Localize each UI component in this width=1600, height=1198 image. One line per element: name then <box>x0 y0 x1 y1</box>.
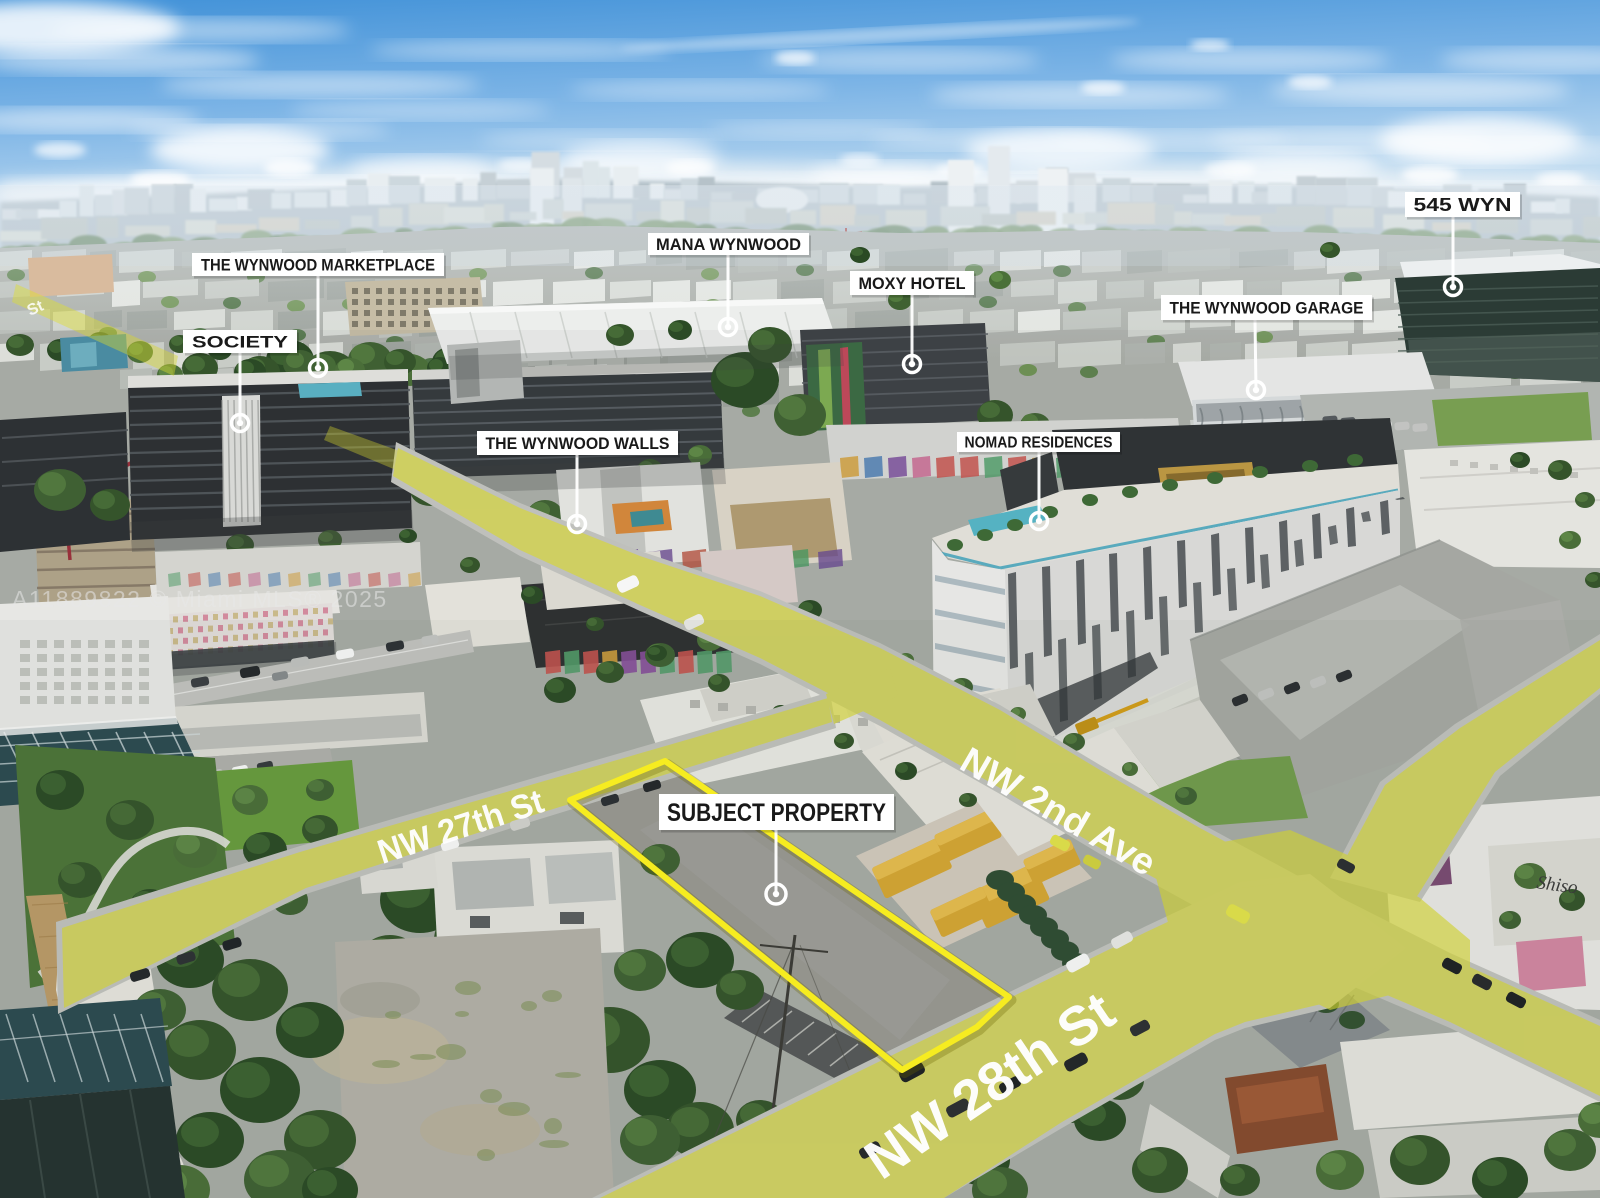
svg-text:545 WYN: 545 WYN <box>1414 195 1512 215</box>
svg-text:THE WYNWOOD GARAGE: THE WYNWOOD GARAGE <box>1170 299 1364 318</box>
svg-text:THE WYNWOOD MARKETPLACE: THE WYNWOOD MARKETPLACE <box>201 256 435 275</box>
svg-text:MANA WYNWOOD: MANA WYNWOOD <box>656 236 801 254</box>
svg-text:A11889822 © Miami MLS® 2025: A11889822 © Miami MLS® 2025 <box>12 586 388 612</box>
svg-text:MOXY HOTEL: MOXY HOTEL <box>859 274 966 293</box>
svg-text:NOMAD RESIDENCES: NOMAD RESIDENCES <box>965 435 1113 452</box>
svg-text:THE WYNWOOD WALLS: THE WYNWOOD WALLS <box>486 434 670 453</box>
svg-text:SOCIETY: SOCIETY <box>192 333 289 352</box>
svg-text:SUBJECT PROPERTY: SUBJECT PROPERTY <box>667 799 886 827</box>
